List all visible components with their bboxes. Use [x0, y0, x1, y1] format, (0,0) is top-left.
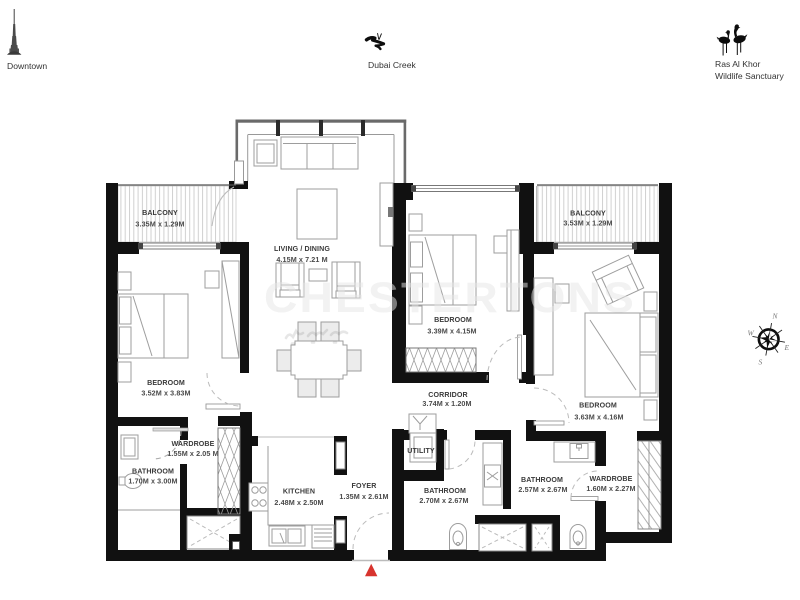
svg-text:S: S	[759, 358, 763, 367]
svg-text:3.35M x 1.29M: 3.35M x 1.29M	[135, 220, 184, 229]
svg-text:LIVING / DINING: LIVING / DINING	[274, 245, 330, 253]
svg-text:2.70M x 2.67M: 2.70M x 2.67M	[419, 496, 468, 505]
svg-text:2.57M x 2.67M: 2.57M x 2.67M	[518, 485, 567, 494]
svg-text:Downtown: Downtown	[7, 61, 47, 71]
svg-text:BATHROOM: BATHROOM	[521, 476, 563, 484]
svg-text:CORRIDOR: CORRIDOR	[428, 391, 467, 399]
svg-text:1.35M x 2.61M: 1.35M x 2.61M	[339, 492, 388, 501]
svg-text:N: N	[772, 312, 779, 321]
svg-text:BALCONY: BALCONY	[570, 210, 606, 218]
svg-text:WARDROBE: WARDROBE	[172, 440, 215, 448]
svg-text:3.63M x 4.16M: 3.63M x 4.16M	[574, 413, 623, 422]
svg-text:4.15M x 7.21 M: 4.15M x 7.21 M	[276, 255, 327, 264]
svg-text:3.53M x 1.29M: 3.53M x 1.29M	[563, 219, 612, 228]
svg-text:WARDROBE: WARDROBE	[590, 475, 633, 483]
svg-text:1.55M x 2.05 M: 1.55M x 2.05 M	[167, 449, 218, 458]
svg-text:3.39M x 4.15M: 3.39M x 4.15M	[427, 327, 476, 336]
svg-text:KITCHEN: KITCHEN	[283, 488, 315, 496]
svg-text:3.52M x 3.83M: 3.52M x 3.83M	[141, 388, 190, 397]
svg-text:Dubai Creek: Dubai Creek	[368, 60, 416, 70]
svg-text:BATHROOM: BATHROOM	[132, 468, 174, 476]
svg-text:BEDROOM: BEDROOM	[579, 402, 617, 410]
svg-text:2.48M x 2.50M: 2.48M x 2.50M	[274, 498, 323, 507]
svg-text:BEDROOM: BEDROOM	[147, 379, 185, 387]
svg-text:Wildlife Sanctuary: Wildlife Sanctuary	[715, 71, 784, 81]
svg-text:CHESTERTONS: CHESTERTONS	[264, 274, 636, 322]
svg-text:UTILITY: UTILITY	[407, 447, 435, 455]
svg-text:BEDROOM: BEDROOM	[434, 316, 472, 324]
svg-text:BATHROOM: BATHROOM	[424, 487, 466, 495]
svg-text:1.60M x 2.27M: 1.60M x 2.27M	[586, 484, 635, 493]
svg-text:Ras Al Khor: Ras Al Khor	[715, 59, 761, 69]
svg-text:W: W	[748, 329, 755, 338]
svg-text:FOYER: FOYER	[352, 482, 377, 490]
svg-text:1.70M x 3.00M: 1.70M x 3.00M	[128, 477, 177, 486]
svg-text:BALCONY: BALCONY	[142, 209, 178, 217]
svg-text:E: E	[784, 343, 790, 352]
svg-text:3.74M x 1.20M: 3.74M x 1.20M	[422, 399, 471, 408]
